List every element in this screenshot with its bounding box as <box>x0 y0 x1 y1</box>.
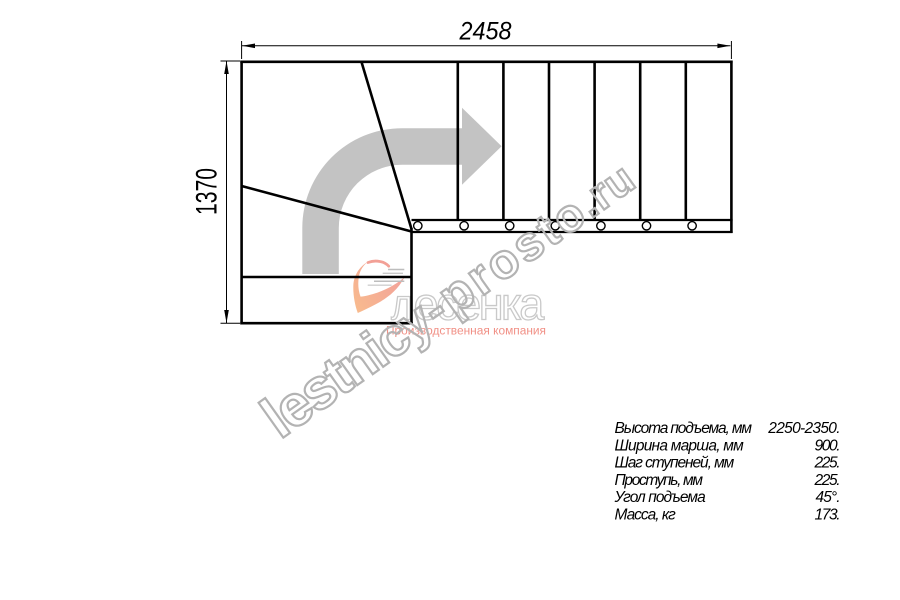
svg-text:2458: 2458 <box>459 18 512 46</box>
svg-text:225.: 225. <box>814 472 841 489</box>
svg-text:Масса, кг: Масса, кг <box>615 507 677 524</box>
svg-text:Проступь, мм: Проступь, мм <box>615 472 704 489</box>
svg-text:900.: 900. <box>815 437 841 454</box>
svg-text:Угол подъема: Угол подъема <box>614 489 707 506</box>
svg-text:1370: 1370 <box>191 168 224 215</box>
svg-text:Высота подъема, мм: Высота подъема, мм <box>615 420 753 437</box>
svg-text:45°.: 45°. <box>816 489 841 506</box>
svg-text:173.: 173. <box>815 507 841 524</box>
svg-text:2250-2350.: 2250-2350. <box>767 420 840 437</box>
svg-text:225.: 225. <box>814 455 841 472</box>
svg-text:Ширина марша, мм: Ширина марша, мм <box>615 437 745 454</box>
svg-text:Шаг ступеней, мм: Шаг ступеней, мм <box>615 455 735 472</box>
